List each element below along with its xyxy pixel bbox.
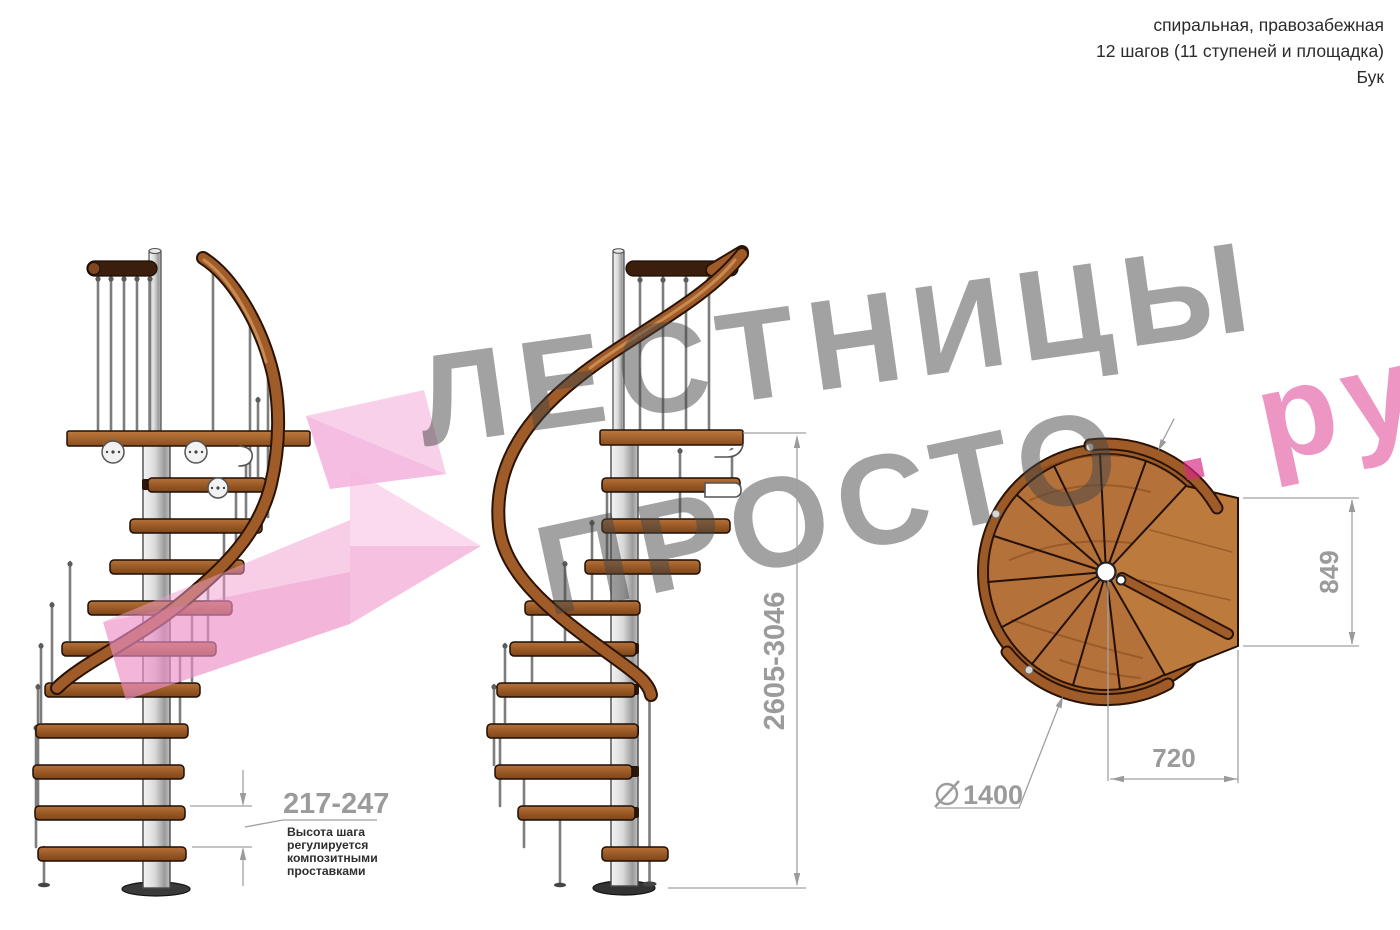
dim-diameter-label: 1400 — [963, 780, 1023, 810]
note-line-4: проставками — [287, 865, 378, 878]
dim-platform-side-label: 849 — [1314, 550, 1344, 593]
dim-step-height-label: 217-247 — [283, 788, 389, 820]
step-height-note: Высота шага регулируется композитными пр… — [287, 826, 378, 878]
stair-type-line: спиральная, правозабежная — [1096, 12, 1384, 38]
steps-count-line: 12 шагов (11 ступеней и площадка) — [1096, 38, 1384, 64]
center-pole-top-view — [1097, 563, 1116, 582]
dim-platform-width-label: 720 — [1152, 743, 1195, 773]
watermark-dot: . — [1155, 360, 1229, 509]
staircase-drawing: ЛЕСТНИЦЫ ПРОСТО . ру 217-247 260 — [0, 0, 1400, 930]
drawing-page: ЛЕСТНИЦЫ ПРОСТО . ру 217-247 260 — [0, 0, 1400, 930]
dim-total-height-label: 2605-3046 — [759, 592, 791, 731]
material-line: Бук — [1096, 64, 1384, 90]
title-block: спиральная, правозабежная 12 шагов (11 с… — [1096, 12, 1384, 90]
